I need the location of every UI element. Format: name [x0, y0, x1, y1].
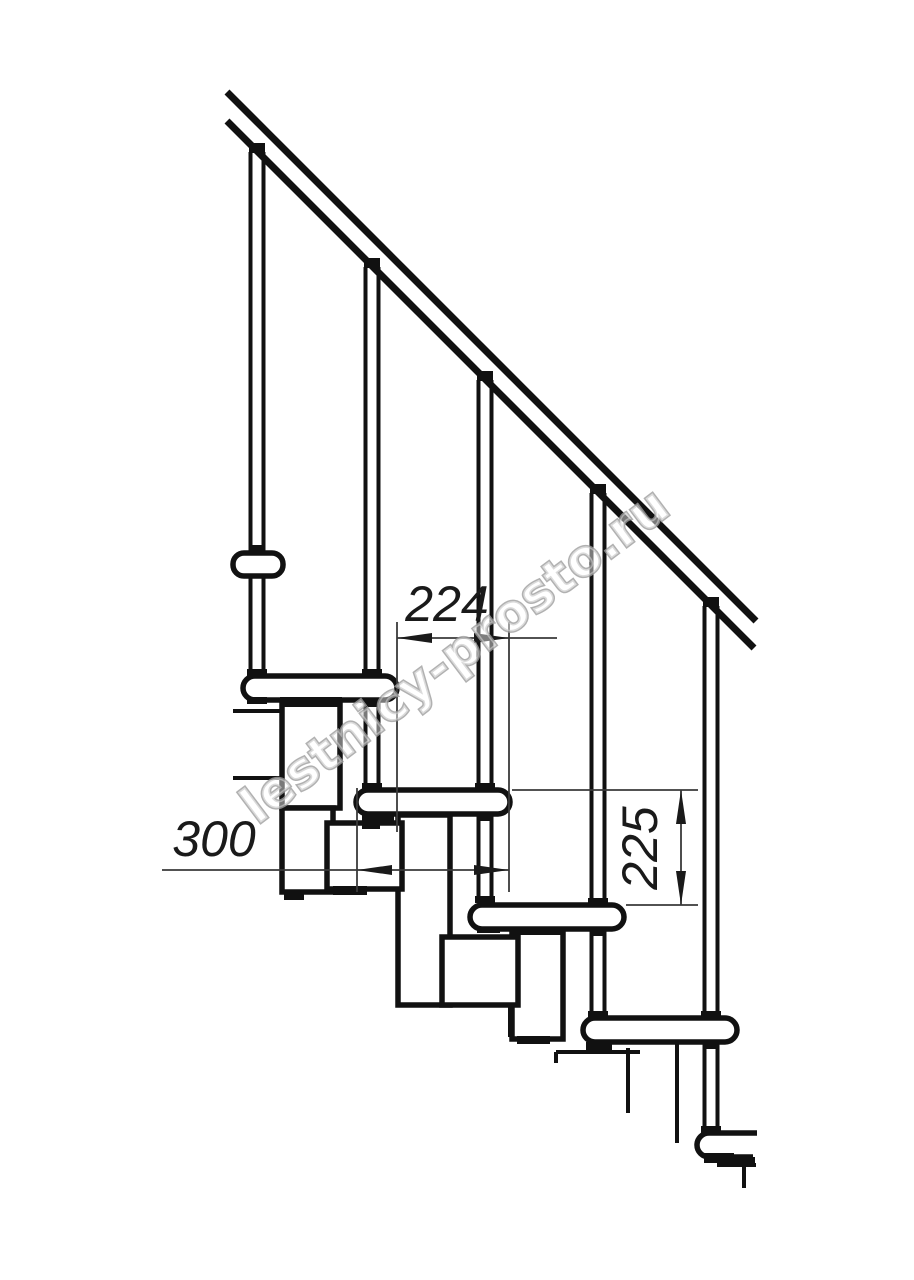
baluster-1-base-flange — [247, 669, 267, 676]
rod-4-bottom-flange — [701, 1126, 721, 1133]
rod-2-top-flange — [477, 815, 493, 821]
baluster-4-rail-cap — [590, 484, 606, 494]
dimension-step-rise: 225 — [612, 790, 686, 905]
rod-3-top-flange — [590, 930, 606, 936]
bracket-body — [233, 553, 283, 576]
clamp-tread3-bar — [510, 928, 565, 935]
watermark-text: lestnicy-prosto.ru — [230, 475, 681, 835]
baluster-4-base-flange — [588, 898, 608, 905]
baluster-1-bracket — [233, 545, 283, 576]
module-foot-step1 — [284, 892, 304, 900]
clamp-tread1-bar — [280, 697, 342, 707]
rod-2-bottom-flange — [475, 896, 495, 903]
tread-2 — [356, 790, 510, 814]
baluster-5-rail-cap — [703, 597, 719, 607]
arrow-rise-top — [676, 790, 686, 824]
rod-1-bottom-flange — [362, 783, 382, 790]
rod-3-bottom-flange — [588, 1011, 608, 1018]
arrow-rise-bottom — [676, 871, 686, 905]
clamp-tread3-foot — [477, 927, 500, 933]
clamp-tread1-foot — [247, 697, 267, 704]
baluster-3-rail-cap — [477, 371, 493, 381]
module-box-step2 — [327, 823, 402, 889]
dim-label-step-rise: 225 — [612, 806, 668, 891]
baluster-3-base-flange — [475, 783, 495, 790]
module-box-step3 — [442, 937, 518, 1005]
clamp-tread4 — [586, 1042, 612, 1050]
rod-4-top-flange — [703, 1043, 719, 1049]
tread-4 — [583, 1018, 737, 1042]
module-foot-step3 — [517, 1036, 550, 1044]
drawing-canvas: 224 300 225 lestnicy-prosto.ru — [0, 0, 914, 1280]
tread-3 — [470, 905, 624, 929]
bracket-flange — [250, 545, 265, 553]
staircase-technical-drawing: 224 300 225 lestnicy-prosto.ru — [0, 0, 914, 1280]
baluster-2-rail-cap — [364, 258, 380, 268]
baluster-1-rail-cap — [249, 143, 265, 153]
module-clamp-step1 — [333, 886, 367, 895]
baluster-5-base-flange — [701, 1011, 721, 1018]
dim-label-tread-depth: 300 — [172, 811, 256, 867]
